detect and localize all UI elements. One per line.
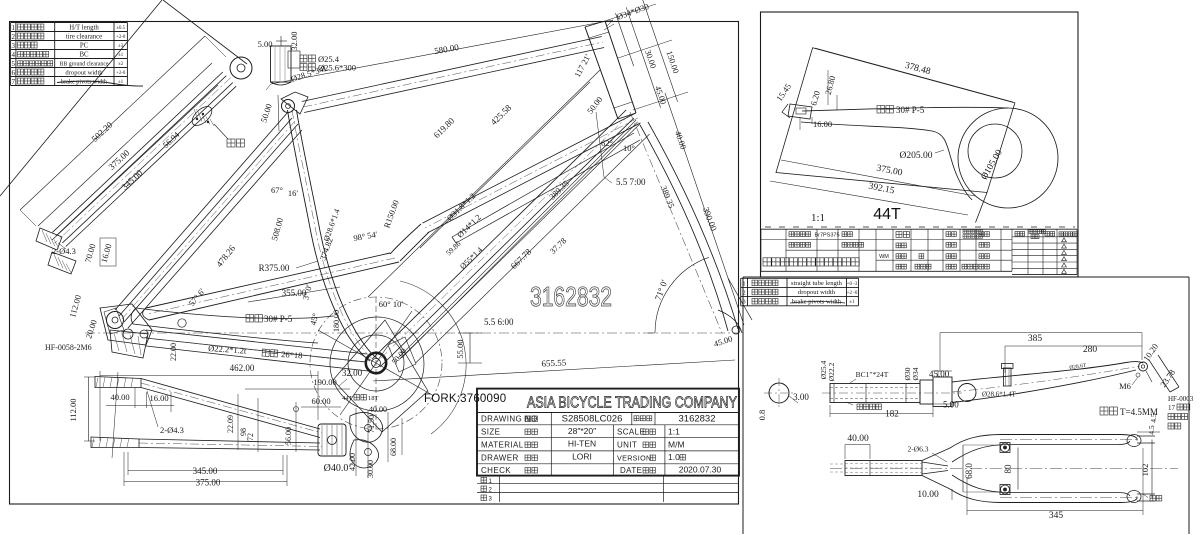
svg-text:Ø40.0: Ø40.0 — [324, 463, 349, 474]
svg-text:45.00: 45.00 — [929, 369, 950, 379]
svg-text:16.00: 16.00 — [813, 119, 832, 129]
svg-text:Ø22.2: Ø22.2 — [827, 362, 836, 381]
svg-text:+0 -3: +0 -3 — [847, 282, 858, 287]
svg-text:80: 80 — [1003, 464, 1013, 474]
svg-text:462.00: 462.00 — [230, 363, 255, 373]
svg-text:30.00: 30.00 — [366, 460, 375, 478]
svg-text:42.00: 42.00 — [348, 453, 357, 471]
svg-text:+2-0: +2-0 — [116, 71, 126, 76]
svg-text:5.00: 5.00 — [258, 39, 273, 49]
svg-text:62°: 62° — [601, 138, 613, 148]
svg-text:345.00: 345.00 — [193, 466, 218, 476]
svg-text:190.00: 190.00 — [313, 377, 336, 387]
svg-text:straight tube length: straight tube length — [791, 280, 843, 287]
svg-text:44T: 44T — [873, 206, 901, 223]
svg-text:2: 2 — [11, 33, 15, 41]
svg-text:3162832: 3162832 — [530, 281, 612, 312]
svg-text:10.00: 10.00 — [917, 490, 939, 500]
svg-text:5.5 6:00: 5.5 6:00 — [484, 317, 514, 327]
svg-text:±2: ±2 — [118, 62, 124, 67]
svg-text:CHECK: CHECK — [481, 466, 511, 475]
svg-text:5.5 7:00: 5.5 7:00 — [616, 177, 646, 187]
svg-text:72: 72 — [246, 433, 255, 441]
svg-text:26*18: 26*18 — [281, 349, 303, 360]
svg-text:6: 6 — [11, 69, 15, 77]
svg-text:4.5: 4.5 — [1149, 413, 1158, 423]
svg-text:112.00: 112.00 — [68, 398, 78, 421]
svg-text:Ø205.00: Ø205.00 — [900, 151, 933, 161]
svg-text:+2 -0: +2 -0 — [847, 291, 858, 296]
svg-text:H/T length: H/T length — [69, 25, 99, 32]
svg-text:2-Ø6.3: 2-Ø6.3 — [907, 445, 928, 454]
svg-text:1: 1 — [742, 280, 745, 287]
svg-text:1.0: 1.0 — [668, 452, 680, 462]
svg-text:40.00: 40.00 — [847, 434, 869, 444]
svg-text:30# P-5: 30# P-5 — [264, 314, 293, 324]
svg-text:Ø34: Ø34 — [911, 367, 920, 380]
svg-text:LORI: LORI — [572, 452, 592, 462]
svg-text:+2-0: +2-0 — [116, 35, 126, 40]
svg-text:60° 10′: 60° 10′ — [379, 299, 404, 309]
svg-text:28″*20″: 28″*20″ — [568, 426, 596, 436]
svg-text:345: 345 — [1049, 511, 1064, 521]
svg-text:±3: ±3 — [118, 44, 124, 49]
svg-text:655.55: 655.55 — [541, 357, 567, 368]
svg-text:R375.00: R375.00 — [259, 263, 290, 273]
svg-text:2020.07.30: 2020.07.30 — [679, 465, 722, 475]
svg-text:±1: ±1 — [849, 300, 855, 305]
svg-text:DATE: DATE — [620, 466, 642, 475]
svg-text:5.00: 5.00 — [943, 400, 959, 410]
svg-text:3.00: 3.00 — [793, 392, 809, 402]
svg-text:71.50: 71.50 — [367, 415, 376, 433]
svg-text:HF-0003: HF-0003 — [1168, 395, 1194, 403]
svg-text:280: 280 — [1083, 345, 1098, 355]
svg-text:dropout width: dropout width — [798, 289, 836, 296]
svg-text:1:1: 1:1 — [668, 426, 680, 436]
svg-text:2: 2 — [742, 289, 745, 296]
svg-text:PC: PC — [80, 43, 89, 50]
svg-text:7: 7 — [11, 78, 15, 86]
svg-text:4: 4 — [11, 51, 15, 59]
svg-text:22.00: 22.00 — [169, 343, 178, 361]
svg-text:67°: 67° — [271, 185, 283, 195]
svg-text:3162832: 3162832 — [679, 414, 716, 425]
svg-text:WM: WM — [879, 254, 889, 260]
svg-text:S28508LC026: S28508LC026 — [562, 414, 623, 425]
svg-text:16.00: 16.00 — [149, 393, 168, 403]
svg-text:102: 102 — [1140, 464, 1150, 477]
svg-text:40.00: 40.00 — [110, 392, 129, 402]
svg-text:1: 1 — [11, 24, 15, 32]
svg-text:32.00: 32.00 — [342, 368, 363, 378]
svg-text:BC1″*24T: BC1″*24T — [856, 370, 889, 379]
svg-text:22.09: 22.09 — [226, 415, 235, 433]
svg-text:SIZE: SIZE — [481, 428, 500, 437]
svg-text:HI-TEN: HI-TEN — [568, 438, 596, 448]
svg-text:30# P-5: 30# P-5 — [896, 105, 925, 115]
svg-text:56.00: 56.00 — [284, 427, 293, 445]
svg-text:SCALE: SCALE — [617, 428, 645, 437]
svg-text:18T: 18T — [368, 395, 379, 402]
svg-text:FORK:3760090: FORK:3760090 — [424, 393, 506, 405]
svg-text:tire clearance: tire clearance — [66, 34, 102, 41]
svg-text:DRAWER: DRAWER — [481, 454, 519, 463]
svg-text:32.00: 32.00 — [289, 31, 299, 50]
svg-text:4.5: 4.5 — [1147, 425, 1156, 435]
svg-text:BC: BC — [79, 52, 89, 59]
svg-text:16′: 16′ — [288, 188, 299, 198]
svg-text:M6: M6 — [1119, 381, 1131, 391]
svg-text:5: 5 — [11, 60, 15, 68]
svg-text:10°: 10° — [623, 143, 635, 153]
svg-text:68.00: 68.00 — [389, 438, 398, 456]
svg-text:ASIA BICYCLE TRADING COMPANY: ASIA BICYCLE TRADING COMPANY — [527, 395, 737, 412]
svg-text:M/M: M/M — [668, 439, 685, 449]
svg-text:VERSION: VERSION — [617, 454, 651, 463]
svg-text:180.00: 180.00 — [332, 310, 341, 332]
svg-text:375.00: 375.00 — [196, 478, 221, 488]
svg-text:60.00: 60.00 — [311, 396, 330, 406]
svg-text:HF-0058-2M6: HF-0058-2M6 — [45, 343, 92, 352]
svg-text:MATERIAL: MATERIAL — [481, 441, 524, 450]
svg-text:55.00: 55.00 — [455, 339, 465, 358]
svg-text:44T: 44T — [342, 395, 353, 402]
svg-text:UNIT: UNIT — [617, 441, 637, 450]
svg-text:3: 3 — [11, 42, 15, 50]
svg-text:385: 385 — [1028, 334, 1043, 344]
svg-text:68.0: 68.0 — [964, 463, 974, 479]
svg-text:0.8: 0.8 — [757, 410, 767, 421]
svg-text:Br7PS375: Br7PS375 — [814, 233, 839, 239]
svg-text:±0.5: ±0.5 — [116, 26, 125, 31]
svg-text:BB ground clearance: BB ground clearance — [60, 62, 109, 68]
svg-text:17: 17 — [1168, 404, 1176, 412]
svg-text:dropout width: dropout width — [65, 70, 103, 77]
svg-text:1:1: 1:1 — [811, 212, 825, 224]
svg-text:40.00: 40.00 — [369, 405, 387, 414]
svg-text:2-Ø4.3: 2-Ø4.3 — [160, 425, 184, 435]
svg-text:±1: ±1 — [118, 53, 124, 58]
svg-text:3: 3 — [742, 299, 745, 306]
